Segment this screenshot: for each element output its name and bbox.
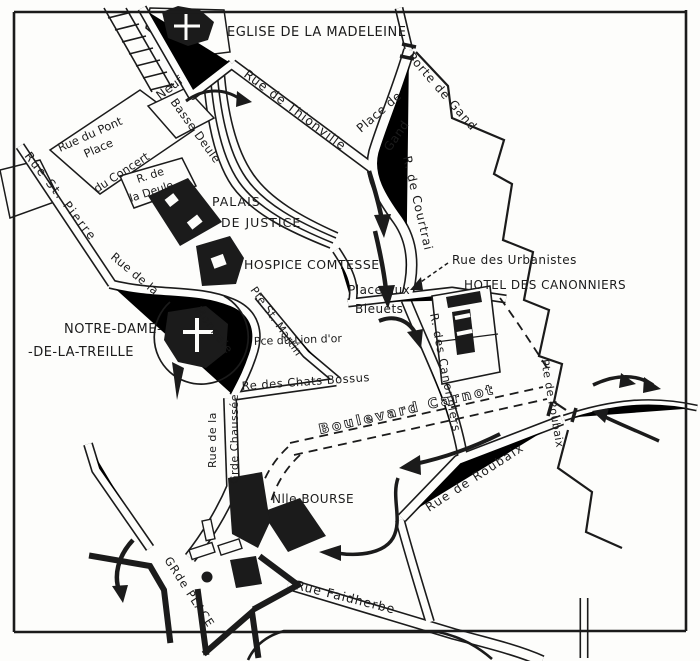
label-eglise-madeleine: EGLISE DE LA MADELEINE — [227, 25, 406, 40]
grand-place-column-dot — [202, 572, 213, 583]
label-hospice-comtesse: HOSPICE COMTESSE — [244, 257, 380, 272]
map-page: EGLISE DE LA MADELEINEPorte de GandPlace… — [0, 0, 700, 661]
label-rue-de-la-gr-chaussee-1: Rue de la — [206, 412, 219, 468]
label-nouvelle-bourse: Nlle BOURSE — [272, 492, 354, 506]
label-notre-dame-1: NOTRE-DAME- — [64, 322, 162, 337]
lille-street-map: EGLISE DE LA MADELEINEPorte de GandPlace… — [0, 0, 700, 661]
label-palais-2: DE JUSTICE — [221, 215, 301, 230]
label-place-aux-bleuets-2: Bleuets — [355, 302, 403, 316]
label-rue-des-urbanistes: Rue des Urbanistes — [452, 253, 577, 267]
label-palais-1: PALAIS — [212, 194, 261, 209]
label-place-aux-bleuets-1: Place aux — [348, 283, 410, 297]
label-rue-de-la-gr-chaussee-2: Grde Chaussée — [228, 394, 241, 484]
label-notre-dame-2: -DE-LA-TREILLE — [28, 345, 134, 360]
label-hotel-des-canonniers: HOTEL DES CANONNIERS — [464, 278, 626, 292]
